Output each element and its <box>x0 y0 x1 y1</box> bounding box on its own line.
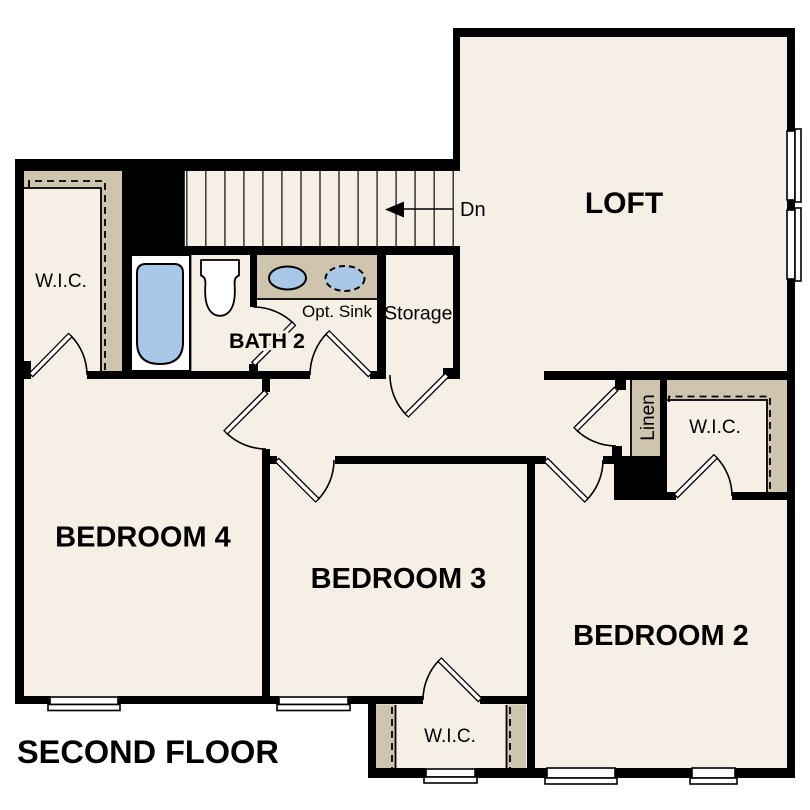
svg-text:SECOND FLOOR: SECOND FLOOR <box>17 734 279 770</box>
svg-text:W.I.C.: W.I.C. <box>689 417 741 438</box>
svg-text:Dn: Dn <box>460 199 486 221</box>
svg-text:Linen: Linen <box>638 394 659 441</box>
svg-text:BATH 2: BATH 2 <box>229 329 305 353</box>
svg-text:BEDROOM 4: BEDROOM 4 <box>55 522 231 554</box>
svg-text:LOFT: LOFT <box>585 187 663 220</box>
svg-text:W.I.C.: W.I.C. <box>424 726 476 747</box>
svg-text:W.I.C.: W.I.C. <box>35 271 87 292</box>
svg-text:Storage: Storage <box>384 303 452 325</box>
svg-text:Opt. Sink: Opt. Sink <box>302 302 372 321</box>
svg-text:BEDROOM 3: BEDROOM 3 <box>311 563 487 595</box>
svg-text:BEDROOM 2: BEDROOM 2 <box>573 620 749 652</box>
